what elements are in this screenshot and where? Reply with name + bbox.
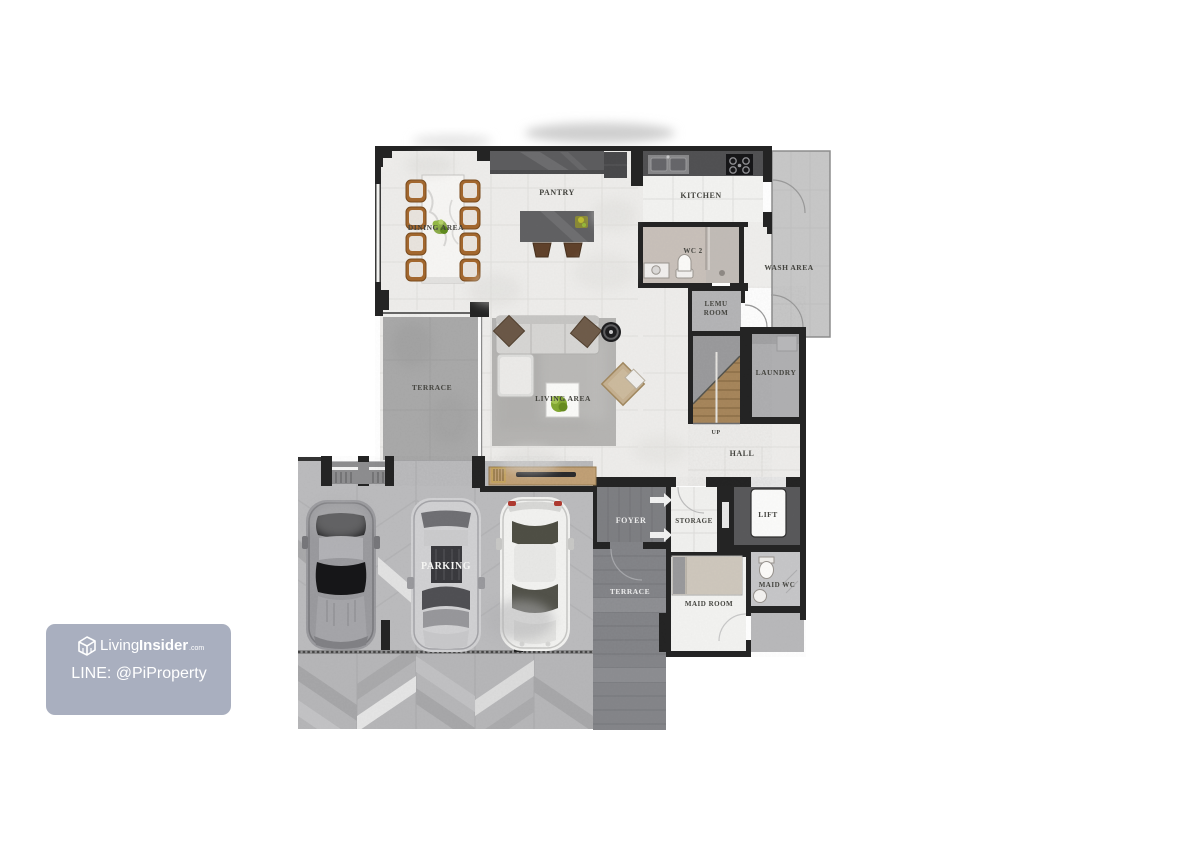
svg-text:TERRACE: TERRACE [610, 587, 650, 596]
svg-text:Living: Living [100, 637, 139, 654]
svg-text:MAID WC: MAID WC [759, 581, 796, 589]
svg-text:ROOM: ROOM [704, 309, 729, 317]
svg-text:LAUNDRY: LAUNDRY [756, 368, 797, 377]
svg-text:.com: .com [189, 645, 204, 652]
svg-text:LINE: @PiProperty: LINE: @PiProperty [71, 665, 206, 682]
svg-text:KITCHEN: KITCHEN [680, 191, 721, 200]
svg-text:MAID ROOM: MAID ROOM [685, 600, 733, 608]
svg-text:TERRACE: TERRACE [412, 383, 452, 392]
svg-text:STORAGE: STORAGE [675, 517, 713, 525]
svg-text:FOYER: FOYER [616, 516, 647, 525]
svg-text:WC 2: WC 2 [683, 247, 702, 255]
svg-text:LEMU: LEMU [705, 300, 728, 308]
svg-text:LIVING AREA: LIVING AREA [535, 394, 591, 403]
svg-text:Insider: Insider [139, 637, 188, 654]
svg-text:WASH AREA: WASH AREA [764, 263, 813, 272]
svg-text:HALL: HALL [730, 449, 755, 458]
svg-text:PARKING: PARKING [421, 561, 471, 572]
svg-text:DINING AREA: DINING AREA [408, 223, 464, 232]
svg-text:LIFT: LIFT [758, 510, 778, 519]
svg-text:UP: UP [712, 430, 721, 436]
svg-text:PANTRY: PANTRY [539, 188, 574, 197]
